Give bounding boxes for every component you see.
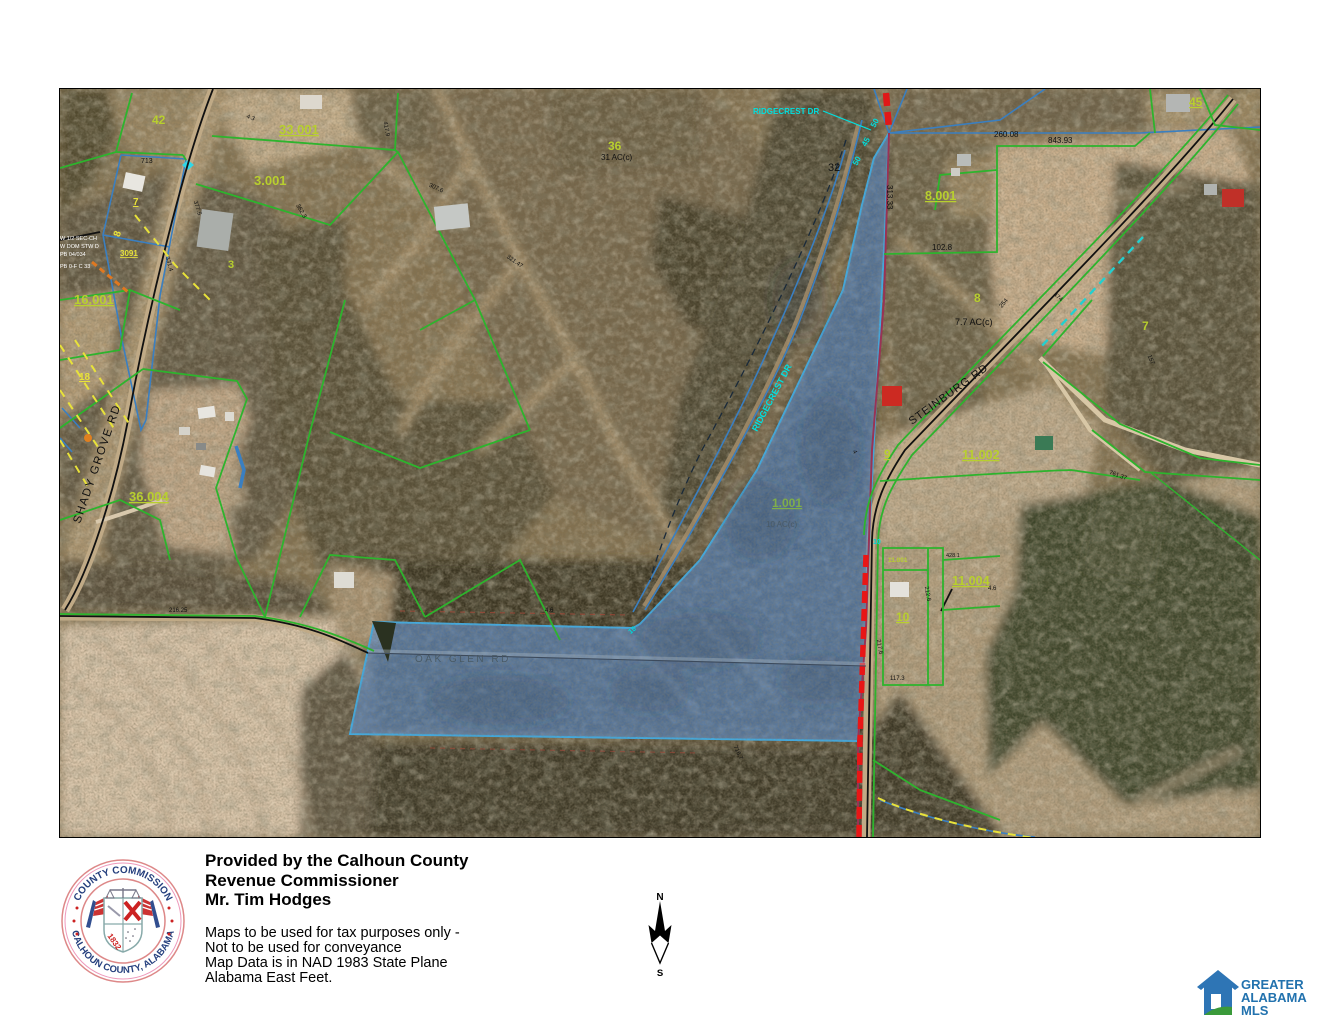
svg-text:W DOM STW D: W DOM STW D: [60, 244, 99, 250]
svg-text:32: 32: [828, 162, 840, 174]
svg-text:10: 10: [896, 610, 910, 624]
svg-text:4.6: 4.6: [545, 608, 554, 614]
svg-text:36.004: 36.004: [129, 489, 170, 504]
svg-text:S: S: [657, 968, 663, 979]
svg-text:843.93: 843.93: [1048, 136, 1073, 145]
svg-text:11.002: 11.002: [962, 448, 1000, 462]
svg-text:31 AC(c): 31 AC(c): [601, 153, 632, 162]
svg-text:3: 3: [228, 259, 234, 271]
svg-text:PB 0-F C 33: PB 0-F C 33: [60, 264, 90, 270]
svg-text:7: 7: [1142, 319, 1149, 333]
svg-text:713: 713: [141, 158, 153, 165]
svg-text:MLS: MLS: [1241, 1003, 1269, 1018]
svg-text:W 1/2 SEC-CH: W 1/2 SEC-CH: [60, 236, 97, 242]
svg-text:10 AC(c): 10 AC(c): [766, 520, 797, 529]
svg-text:216.25: 216.25: [169, 608, 188, 614]
svg-text:8: 8: [974, 291, 981, 305]
svg-text:OAK GLEN RD: OAK GLEN RD: [415, 654, 511, 665]
svg-text:1.001: 1.001: [772, 496, 802, 510]
svg-text:45: 45: [1189, 95, 1203, 109]
svg-text:18: 18: [79, 372, 91, 383]
svg-text:PB 04/034: PB 04/034: [60, 252, 86, 258]
svg-text:3091: 3091: [120, 249, 138, 258]
svg-text:3.001: 3.001: [254, 173, 287, 188]
svg-text:102.8: 102.8: [932, 243, 953, 252]
svg-text:11.001: 11.001: [888, 557, 908, 564]
svg-text:117.3: 117.3: [890, 676, 905, 682]
svg-text:16.001: 16.001: [74, 292, 114, 307]
svg-text:313.33: 313.33: [885, 185, 894, 210]
svg-text:8.001: 8.001: [925, 189, 956, 203]
svg-text:11.004: 11.004: [952, 574, 990, 588]
svg-text:428.1: 428.1: [946, 553, 960, 559]
svg-text:33.001: 33.001: [279, 122, 319, 137]
svg-text:10: 10: [873, 539, 881, 546]
svg-text:RIDGECREST DR: RIDGECREST DR: [753, 107, 819, 116]
svg-text:4.6: 4.6: [988, 586, 997, 592]
svg-text:42: 42: [152, 113, 166, 127]
svg-text:9: 9: [884, 447, 891, 461]
svg-text:7: 7: [133, 197, 139, 208]
svg-text:36: 36: [608, 139, 622, 153]
svg-text:7.7 AC(c): 7.7 AC(c): [955, 317, 993, 327]
svg-text:260.08: 260.08: [994, 130, 1019, 139]
